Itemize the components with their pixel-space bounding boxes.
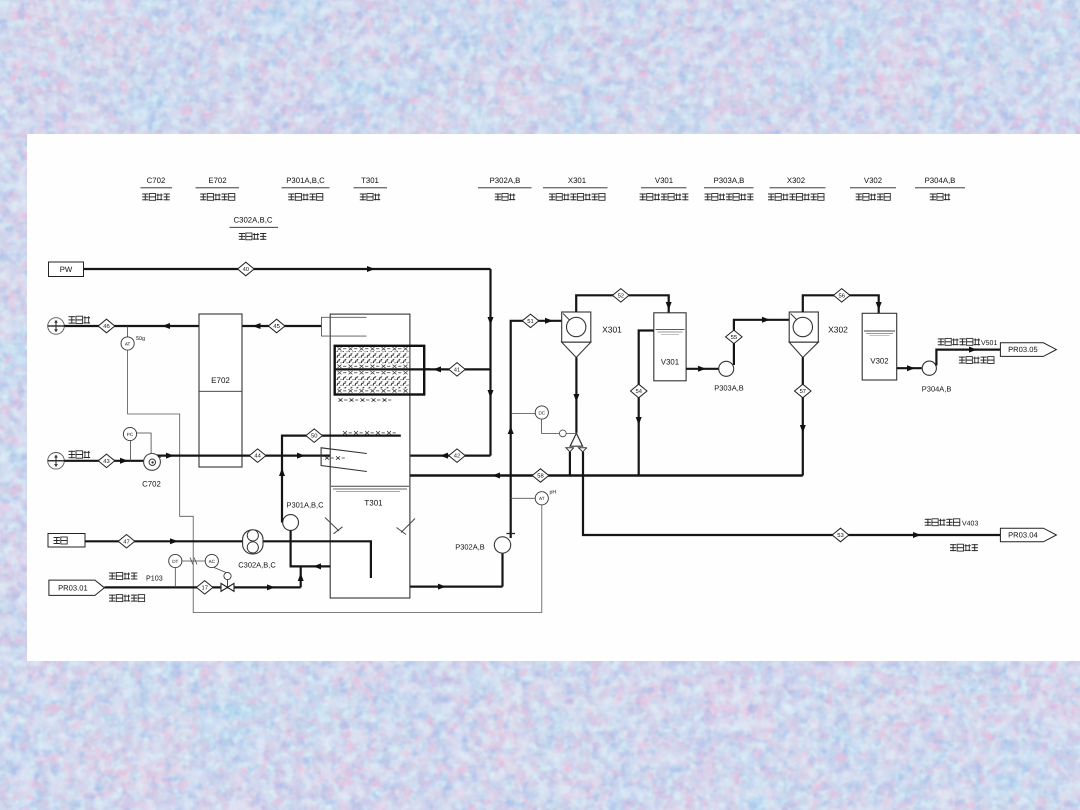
svg-text:AT: AT [539, 496, 545, 501]
svg-text:V301: V301 [655, 176, 673, 185]
svg-text:PR03.04: PR03.04 [1008, 531, 1038, 540]
svg-text:58: 58 [537, 473, 543, 480]
svg-text:V302: V302 [870, 357, 888, 366]
svg-text:52: 52 [618, 292, 624, 299]
svg-text:47: 47 [123, 539, 129, 545]
svg-text:17: 17 [201, 585, 207, 591]
svg-text:54: 54 [635, 389, 642, 395]
svg-text:DC: DC [538, 410, 545, 415]
svg-text:41: 41 [454, 367, 460, 373]
svg-text:V302: V302 [864, 176, 882, 185]
svg-text:P303A,B: P303A,B [714, 384, 744, 393]
svg-text:X301: X301 [568, 176, 586, 185]
svg-text:T301: T301 [364, 499, 383, 508]
svg-text:57: 57 [800, 389, 806, 395]
svg-text:PW: PW [60, 265, 73, 274]
svg-text:AC: AC [209, 559, 216, 564]
svg-text:AT: AT [125, 341, 131, 346]
svg-text:42: 42 [454, 453, 460, 460]
svg-text:P301A,B,C: P301A,B,C [286, 176, 325, 185]
svg-text:pH: pH [550, 490, 557, 496]
svg-text:C302A,B,C: C302A,B,C [238, 561, 276, 570]
svg-text:44: 44 [254, 454, 261, 460]
svg-text:56: 56 [838, 292, 844, 299]
svg-text:PR03.01: PR03.01 [58, 583, 88, 592]
svg-text:V403: V403 [962, 521, 978, 528]
svg-text:46: 46 [103, 323, 109, 330]
svg-text:P304A,B: P304A,B [925, 176, 956, 185]
svg-text:C702: C702 [147, 176, 166, 185]
svg-text:P303A,B: P303A,B [714, 176, 745, 185]
svg-text:PC: PC [127, 432, 134, 437]
svg-text:40: 40 [243, 266, 249, 273]
svg-text:V301: V301 [661, 358, 679, 367]
svg-text:43: 43 [103, 458, 109, 465]
svg-text:PR03.05: PR03.05 [1008, 345, 1038, 354]
svg-text:C302A,B,C: C302A,B,C [233, 216, 272, 225]
svg-text:V501: V501 [981, 340, 997, 347]
svg-text:X302: X302 [787, 176, 805, 185]
svg-text:50g: 50g [136, 336, 145, 342]
svg-text:P302A,B: P302A,B [490, 176, 521, 185]
svg-text:T301: T301 [361, 176, 379, 185]
svg-text:C702: C702 [142, 480, 161, 489]
svg-text:E702: E702 [208, 176, 226, 185]
svg-text:X302: X302 [828, 325, 848, 335]
svg-text:P301A,B,C: P301A,B,C [286, 501, 324, 510]
svg-text:53: 53 [837, 532, 843, 539]
svg-text:45: 45 [273, 324, 279, 330]
svg-text:DT: DT [172, 559, 178, 564]
svg-text:P103: P103 [146, 574, 163, 583]
svg-text:51: 51 [527, 319, 533, 325]
svg-text:X301: X301 [602, 325, 622, 335]
svg-text:55: 55 [731, 335, 737, 341]
svg-text:50: 50 [311, 433, 317, 440]
svg-text:P304A,B: P304A,B [922, 385, 952, 394]
svg-text:P302A,B: P302A,B [455, 543, 485, 552]
svg-text:E702: E702 [211, 376, 230, 385]
